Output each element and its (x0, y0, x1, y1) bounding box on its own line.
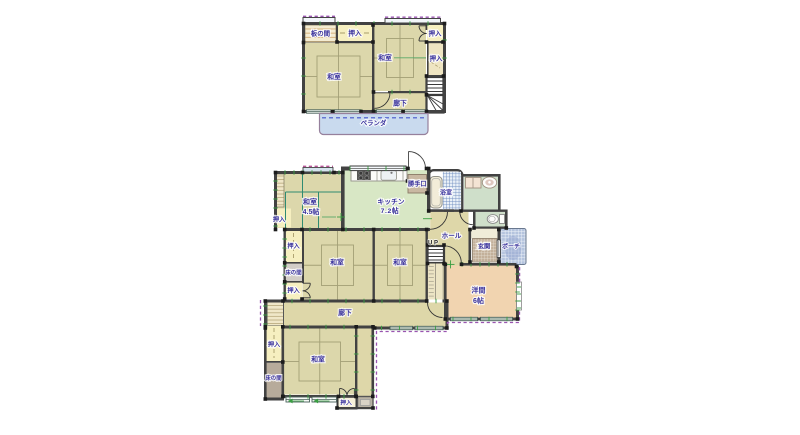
svg-text:押入: 押入 (273, 216, 286, 224)
svg-text:勝手口: 勝手口 (408, 180, 427, 188)
svg-text:6帖: 6帖 (473, 296, 484, 305)
svg-text:キッチン: キッチン (377, 198, 404, 206)
svg-text:玄関: 玄関 (478, 242, 490, 250)
svg-text:ベランダ: ベランダ (361, 118, 387, 127)
svg-text:廊下: 廊下 (338, 308, 352, 317)
svg-text:4.5帖: 4.5帖 (303, 207, 320, 216)
svg-text:和室: 和室 (327, 72, 341, 81)
svg-text:押入: 押入 (287, 287, 300, 295)
svg-text:押入: 押入 (429, 29, 442, 38)
svg-text:浴室: 浴室 (440, 189, 452, 197)
svg-text:床の間: 床の間 (285, 269, 302, 277)
svg-text:和室: 和室 (302, 197, 317, 206)
svg-text:押入: 押入 (340, 398, 352, 406)
svg-text:ホール: ホール (442, 232, 462, 240)
svg-text:U P: U P (428, 241, 438, 247)
svg-text:床の間: 床の間 (265, 374, 282, 382)
svg-text:和室: 和室 (330, 258, 344, 267)
svg-text:押入: 押入 (348, 29, 362, 38)
svg-text:ポーチ: ポーチ (502, 243, 520, 251)
svg-text:押入: 押入 (287, 242, 300, 250)
svg-text:押入: 押入 (268, 341, 281, 349)
svg-text:廊下: 廊下 (393, 99, 407, 108)
svg-text:和室: 和室 (378, 53, 392, 62)
svg-text:洋間: 洋間 (472, 286, 486, 295)
svg-text:板の間: 板の間 (311, 29, 330, 38)
svg-text:和室: 和室 (311, 355, 325, 364)
svg-text:和室: 和室 (393, 258, 407, 267)
svg-text:押入: 押入 (430, 54, 443, 63)
svg-text:7.2帖: 7.2帖 (381, 206, 400, 215)
